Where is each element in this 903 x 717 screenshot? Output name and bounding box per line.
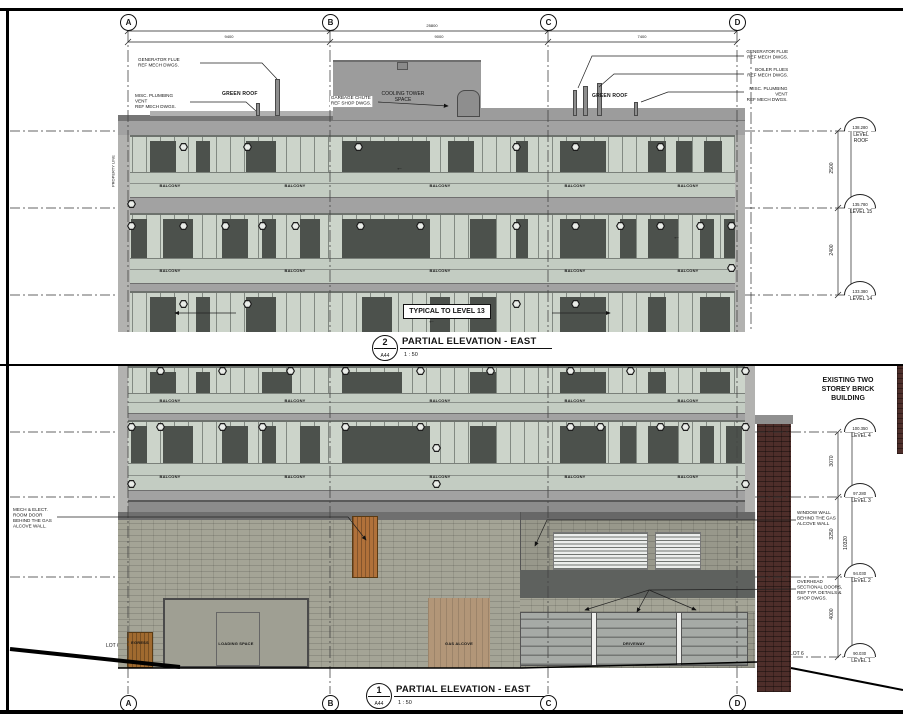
level-elevation: 133.380 bbox=[852, 289, 867, 294]
balcony-label: BALCONY bbox=[277, 184, 312, 189]
dimension-vertical: 4000 bbox=[829, 599, 835, 629]
driveway-block-strip bbox=[520, 598, 755, 612]
window-tag-icon bbox=[727, 222, 736, 230]
loading-space-label: LOADING SPACE bbox=[218, 642, 253, 647]
mech-room-door bbox=[352, 516, 378, 578]
glazing-band bbox=[118, 366, 755, 393]
window-dark-panel bbox=[150, 372, 176, 393]
dimension-vertical: 2500 bbox=[829, 153, 835, 183]
balcony-label: BALCONY bbox=[277, 475, 312, 480]
panel1-scale: 1 : 50 bbox=[398, 700, 412, 706]
dimension-bay: 9000 bbox=[421, 35, 456, 40]
window-dark-panel bbox=[342, 372, 402, 393]
window-tag-icon bbox=[432, 480, 441, 488]
window-dark-panel bbox=[700, 372, 730, 393]
building-pier-right bbox=[745, 366, 755, 512]
door-slide-arrow-icon: ← bbox=[428, 318, 435, 325]
detail-sheet: A44 bbox=[373, 353, 397, 359]
garbage-chute-cylinder bbox=[457, 90, 480, 117]
dimension-vertical: 3070 bbox=[829, 446, 835, 476]
window-tag-icon bbox=[486, 367, 495, 375]
window-dark-panel bbox=[470, 219, 496, 258]
annotation-plumbing-vent-right: MISC. PLUMBING VENT REF MECH DWGS. bbox=[736, 87, 788, 103]
door-mullion-1 bbox=[591, 612, 597, 666]
window-tag-icon bbox=[741, 423, 750, 431]
window-tag-icon bbox=[681, 423, 690, 431]
level-marker: 135.780 bbox=[844, 194, 876, 208]
egress-label: EGRESS bbox=[122, 641, 157, 646]
level-elevation: 135.780 bbox=[852, 202, 867, 207]
existing-brick-pier bbox=[757, 424, 791, 692]
window-dark-panel bbox=[726, 426, 742, 463]
window-dark-panel bbox=[222, 426, 248, 463]
sheet-border-top bbox=[0, 8, 903, 11]
balcony-label: BALCONY bbox=[152, 475, 187, 480]
grid-bubble: B bbox=[322, 14, 339, 31]
panel2-title: PARTIAL ELEVATION - EAST bbox=[400, 336, 552, 349]
panel2-scale: 1 : 50 bbox=[404, 352, 418, 358]
balcony-label: BALCONY bbox=[670, 184, 705, 189]
window-tag-icon bbox=[626, 367, 635, 375]
dimension-overall: 25800 bbox=[414, 24, 449, 29]
balcony-label: BALCONY bbox=[557, 269, 592, 274]
level-elevation: 97.280 bbox=[853, 491, 866, 496]
loading-bay-door-outline bbox=[216, 612, 260, 666]
level-marker: 90.030 bbox=[844, 643, 876, 657]
floor-slab bbox=[118, 197, 745, 213]
level-label: LEVEL ROOF bbox=[841, 133, 881, 145]
dimension-vertical-total: 10320 bbox=[843, 528, 849, 558]
boiler-flue-pipe-2 bbox=[597, 83, 602, 116]
level-elevation: 138.280 bbox=[852, 125, 867, 130]
boiler-flue-pipe-1 bbox=[583, 86, 588, 116]
level-marker: 100.350 bbox=[844, 418, 876, 432]
window-tag-icon bbox=[566, 367, 575, 375]
annotation-boiler-flues: BOILER FLUES REF MECH DWGS. bbox=[744, 68, 788, 79]
balcony-label: BALCONY bbox=[152, 269, 187, 274]
window-tag-icon bbox=[416, 423, 425, 431]
grid-bubble: A bbox=[120, 14, 137, 31]
window-tag-icon bbox=[656, 143, 665, 151]
glazing-band bbox=[118, 213, 745, 258]
level-label: LEVEL 4 bbox=[841, 434, 881, 440]
level-marker: 97.280 bbox=[844, 483, 876, 497]
panel1-title: PARTIAL ELEVATION - EAST bbox=[394, 684, 546, 697]
level-label: LEVEL 3 bbox=[841, 499, 881, 505]
window-dark-panel bbox=[648, 426, 678, 463]
window-tag-icon bbox=[221, 222, 230, 230]
building-pier-left bbox=[118, 135, 130, 332]
annotation-generator-flue-left: GENERATOR FLUE REF MECH DWGS. bbox=[138, 58, 180, 69]
window-tag-icon bbox=[432, 444, 441, 452]
door-slide-arrow-icon: ← bbox=[673, 234, 680, 241]
window-tag-icon bbox=[127, 480, 136, 488]
level-elevation: 94.030 bbox=[853, 571, 866, 576]
balcony-label: BALCONY bbox=[670, 399, 705, 404]
window-tag-icon bbox=[179, 300, 188, 308]
balcony-label: BALCONY bbox=[670, 269, 705, 274]
window-tag-icon bbox=[727, 264, 736, 272]
window-tag-icon bbox=[258, 423, 267, 431]
window-tag-icon bbox=[127, 200, 136, 208]
balcony-label: BALCONY bbox=[152, 184, 187, 189]
level-elevation: 90.030 bbox=[853, 651, 866, 656]
property-line-label: PROPERTY LINE bbox=[112, 131, 117, 187]
window-dark-panel bbox=[560, 372, 606, 393]
detail-number: 2 bbox=[373, 337, 397, 347]
lot-label-right: LOT 6 bbox=[790, 652, 804, 658]
roof-parapet-right bbox=[481, 108, 745, 120]
drawing-sheet: GENERATOR FLUE REF MECH DWGS. MISC. PLUM… bbox=[0, 0, 903, 717]
window-tag-icon bbox=[218, 367, 227, 375]
brick-pier-cap bbox=[755, 415, 793, 424]
louver-grille-2 bbox=[655, 532, 701, 570]
window-tag-icon bbox=[741, 367, 750, 375]
window-tag-icon bbox=[616, 222, 625, 230]
overhead-sectional-doors bbox=[520, 612, 748, 666]
generator-flue-pipe-left bbox=[275, 79, 280, 116]
gas-alcove-panel bbox=[428, 598, 490, 668]
detail-sheet: A44 bbox=[367, 701, 391, 707]
level-label: LEVEL 2 bbox=[841, 579, 881, 585]
gas-alcove-label: GAS ALCOVE bbox=[441, 642, 476, 647]
level-marker: 94.030 bbox=[844, 563, 876, 577]
window-dark-panel bbox=[342, 426, 430, 463]
roof-slab bbox=[118, 121, 745, 135]
window-tag-icon bbox=[341, 423, 350, 431]
window-tag-icon bbox=[156, 367, 165, 375]
door-mullion-2 bbox=[676, 612, 682, 666]
grid-bubble: D bbox=[729, 14, 746, 31]
dimension-bay: 7400 bbox=[624, 35, 659, 40]
window-dark-panel bbox=[560, 297, 606, 332]
window-dark-panel bbox=[262, 372, 292, 393]
window-tag-icon bbox=[571, 143, 580, 151]
transfer-slab bbox=[118, 500, 755, 512]
window-dark-panel bbox=[470, 372, 496, 393]
window-tag-icon bbox=[354, 143, 363, 151]
annotation-mech-room: MECH & ELECT. ROOM DOOR BEHIND THE GAS A… bbox=[13, 508, 52, 530]
window-dark-panel bbox=[704, 141, 722, 172]
window-tag-icon bbox=[571, 222, 580, 230]
driveway-label: DRIVEWAY bbox=[616, 642, 651, 647]
window-dark-panel bbox=[700, 297, 730, 332]
green-roof-label-left: GREEN ROOF bbox=[222, 91, 258, 97]
window-dark-panel bbox=[196, 372, 210, 393]
green-roof-label-right: GREEN ROOF bbox=[592, 93, 628, 99]
window-dark-panel bbox=[676, 141, 692, 172]
sheet-border-bottom bbox=[0, 710, 903, 714]
existing-building-label: EXISTING TWO STOREY BRICK BUILDING bbox=[797, 376, 899, 403]
balcony-label: BALCONY bbox=[422, 184, 457, 189]
window-dark-panel bbox=[448, 141, 474, 172]
window-dark-panel bbox=[560, 141, 606, 172]
window-dark-panel bbox=[131, 426, 147, 463]
window-tag-icon bbox=[696, 222, 705, 230]
window-dark-panel bbox=[648, 372, 666, 393]
roof-vent-cap bbox=[397, 62, 408, 70]
annotation-overhead-doors: OVERHEAD SECTIONAL DOORS, REF TYP. DETAI… bbox=[797, 580, 842, 602]
panel-divider-line bbox=[0, 364, 903, 366]
balcony-label: BALCONY bbox=[277, 269, 312, 274]
window-tag-icon bbox=[566, 423, 575, 431]
roof-parapet-left bbox=[150, 111, 333, 116]
annotation-garbage-chute: GARBAGE CHUTE REF SHOP DWGS. bbox=[330, 96, 372, 107]
balcony-label: BALCONY bbox=[152, 399, 187, 404]
window-tag-icon bbox=[127, 423, 136, 431]
window-tag-icon bbox=[596, 423, 605, 431]
window-tag-icon bbox=[291, 222, 300, 230]
sheet-border-left bbox=[6, 8, 9, 713]
dimension-bay: 9400 bbox=[211, 35, 246, 40]
balcony-label: BALCONY bbox=[557, 184, 592, 189]
window-tag-icon bbox=[656, 423, 665, 431]
balcony-label: BALCONY bbox=[557, 475, 592, 480]
window-tag-icon bbox=[243, 300, 252, 308]
level-label: LEVEL 14 bbox=[841, 297, 881, 303]
window-tag-icon bbox=[571, 300, 580, 308]
detail-number: 1 bbox=[367, 685, 391, 695]
window-dark-panel bbox=[196, 297, 210, 332]
window-tag-icon bbox=[416, 367, 425, 375]
floor-slab bbox=[118, 283, 745, 291]
window-tag-icon bbox=[416, 222, 425, 230]
existing-brick-sliver bbox=[897, 366, 903, 454]
window-dark-panel bbox=[300, 426, 320, 463]
window-tag-icon bbox=[286, 367, 295, 375]
grid-bubble: C bbox=[540, 14, 557, 31]
balcony-label: BALCONY bbox=[670, 475, 705, 480]
window-tag-icon bbox=[341, 367, 350, 375]
balcony-label: BALCONY bbox=[277, 399, 312, 404]
glazing-band bbox=[118, 135, 745, 172]
window-dark-panel bbox=[262, 426, 276, 463]
egress-door bbox=[127, 632, 153, 668]
building-pier-left bbox=[118, 366, 128, 512]
generator-flue-pipe-right bbox=[573, 90, 577, 116]
plumbing-vent-pipe-left bbox=[256, 103, 260, 116]
annotation-plumbing-vent-left: MISC. PLUMBING VENT REF MECH DWGS. bbox=[135, 94, 176, 110]
window-dark-panel bbox=[163, 426, 193, 463]
window-tag-icon bbox=[356, 222, 365, 230]
floor-slab bbox=[118, 413, 755, 420]
annotation-generator-flue-right: GENERATOR FLUE REF MECH DWGS. bbox=[744, 50, 788, 61]
level-label: LEVEL 15 bbox=[841, 210, 881, 216]
balcony-label: BALCONY bbox=[557, 399, 592, 404]
balcony-label: BALCONY bbox=[422, 269, 457, 274]
window-dark-panel bbox=[150, 141, 176, 172]
window-tag-icon bbox=[127, 222, 136, 230]
plumbing-vent-pipe-right bbox=[634, 102, 638, 116]
window-dark-panel bbox=[362, 297, 392, 332]
level-label: LEVEL 1 bbox=[841, 659, 881, 665]
window-dark-panel bbox=[560, 426, 606, 463]
window-tag-icon bbox=[243, 143, 252, 151]
window-tag-icon bbox=[741, 480, 750, 488]
detail-bubble-1: 1 A44 bbox=[366, 683, 392, 709]
level-marker: 138.280 bbox=[844, 117, 876, 131]
window-dark-panel bbox=[470, 426, 496, 463]
window-dark-panel bbox=[300, 219, 320, 258]
balcony-label: BALCONY bbox=[422, 399, 457, 404]
window-dark-panel bbox=[163, 219, 193, 258]
window-tag-icon bbox=[156, 423, 165, 431]
detail-bubble-2: 2 A44 bbox=[372, 335, 398, 361]
window-dark-panel bbox=[560, 219, 606, 258]
window-tag-icon bbox=[179, 143, 188, 151]
window-tag-icon bbox=[179, 222, 188, 230]
balcony-label: BALCONY bbox=[422, 475, 457, 480]
driveway-header-band bbox=[520, 570, 755, 598]
window-tag-icon bbox=[218, 423, 227, 431]
window-dark-panel bbox=[648, 297, 666, 332]
typical-note-box: TYPICAL TO LEVEL 13 bbox=[403, 304, 491, 319]
level-marker: 133.380 bbox=[844, 281, 876, 295]
window-dark-panel bbox=[196, 141, 210, 172]
window-tag-icon bbox=[512, 300, 521, 308]
dimension-vertical: 3250 bbox=[829, 519, 835, 549]
floor-slab bbox=[118, 490, 755, 500]
building-pier-right bbox=[735, 135, 745, 332]
window-tag-icon bbox=[258, 222, 267, 230]
window-tag-icon bbox=[656, 222, 665, 230]
level-elevation: 100.350 bbox=[852, 426, 867, 431]
louver-grille-1 bbox=[553, 532, 648, 570]
window-tag-icon bbox=[512, 143, 521, 151]
dimension-vertical: 2400 bbox=[829, 235, 835, 265]
window-dark-panel bbox=[700, 426, 714, 463]
door-slide-arrow-icon: ← bbox=[396, 165, 403, 172]
window-dark-panel bbox=[620, 426, 636, 463]
window-dark-panel bbox=[150, 297, 176, 332]
window-tag-icon bbox=[512, 222, 521, 230]
